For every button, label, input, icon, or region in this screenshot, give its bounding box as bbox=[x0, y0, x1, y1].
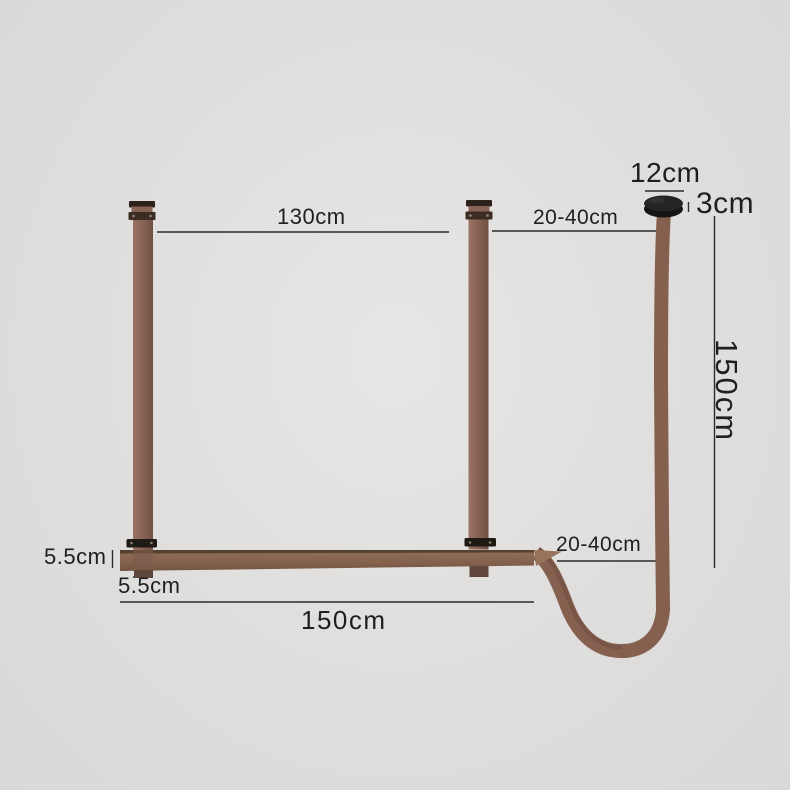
left-strap-wrap-over-bar bbox=[133, 550, 153, 571]
label-bottom-adjustable-gap: 20-40cm bbox=[556, 534, 641, 555]
middle-strap-top-piece bbox=[469, 206, 490, 212]
ceiling-canopy bbox=[644, 196, 683, 218]
label-span-130cm: 130cm bbox=[277, 206, 346, 228]
left-strap-buckle-rivet bbox=[132, 215, 135, 218]
label-strap-width: 5.5cm bbox=[118, 575, 180, 597]
middle-strap-clamp-rivet bbox=[489, 541, 492, 544]
middle-strap-top-cap bbox=[466, 200, 492, 207]
canopy-disc-top bbox=[644, 196, 683, 212]
middle-strap-body bbox=[469, 220, 489, 550]
diagram-canvas: 130cm 20-40cm 12cm 3cm 150cm 20-40cm 5.5… bbox=[0, 0, 790, 790]
left-strap-body bbox=[133, 220, 153, 550]
horizontal-bar bbox=[120, 550, 562, 578]
middle-strap-buckle-rivet bbox=[469, 214, 472, 217]
canopy-disc-highlight bbox=[649, 198, 665, 204]
left-strap-clamp-rivet bbox=[150, 542, 153, 545]
pendant-loop-strap bbox=[536, 213, 664, 651]
label-canopy-diameter: 12cm bbox=[630, 159, 700, 187]
label-bar-height: 5.5cm bbox=[44, 546, 106, 568]
middle-strap-clamp-rivet bbox=[469, 541, 472, 544]
left-strap-top-piece bbox=[132, 207, 153, 213]
middle-strap bbox=[465, 200, 497, 577]
label-top-adjustable-gap: 20-40cm bbox=[533, 207, 618, 228]
left-strap bbox=[127, 201, 158, 550]
product-illustration bbox=[0, 0, 790, 790]
label-cord-drop-height: 150cm bbox=[711, 339, 742, 442]
label-canopy-thickness: 3cm bbox=[696, 189, 754, 219]
middle-strap-buckle-rivet bbox=[486, 214, 489, 217]
label-bar-length: 150cm bbox=[301, 607, 387, 633]
left-strap-buckle-rivet bbox=[149, 215, 152, 218]
left-strap-clamp-rivet bbox=[130, 542, 133, 545]
